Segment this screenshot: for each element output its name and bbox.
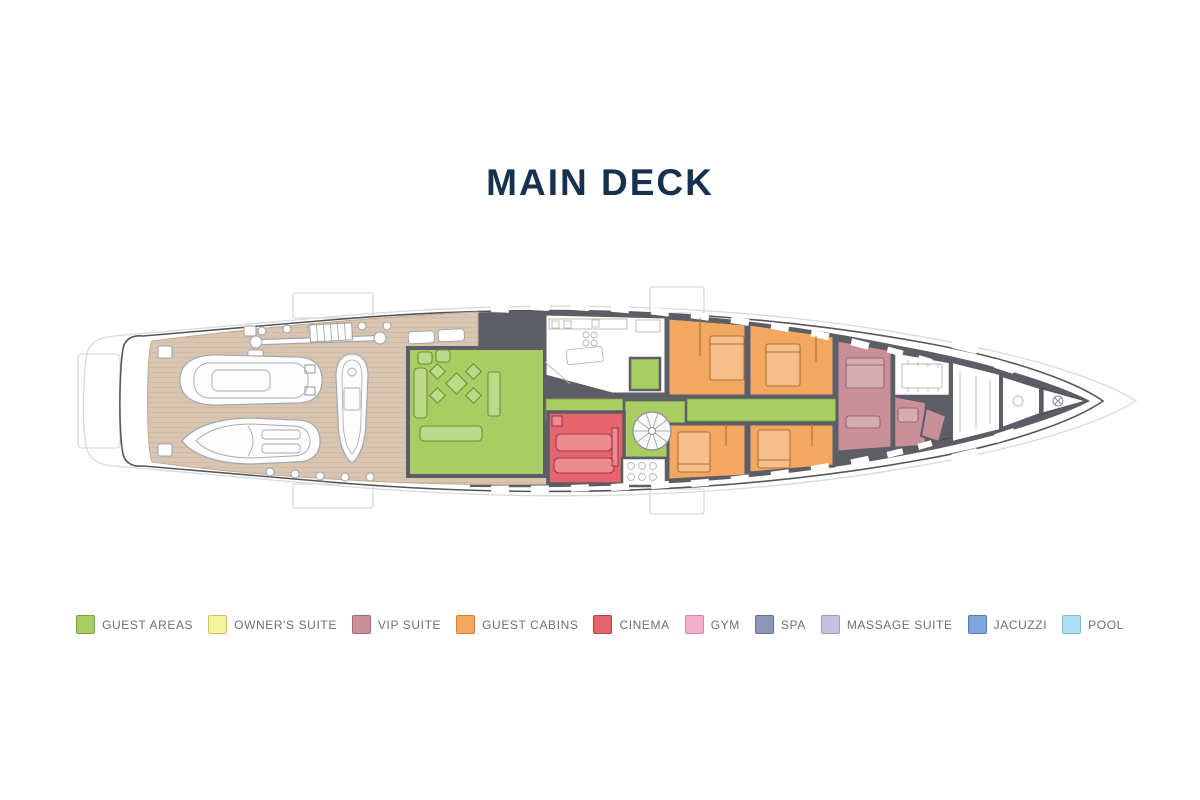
legend-swatch-cinema — [593, 615, 612, 634]
aft-stairway — [310, 323, 353, 342]
legend-label-guest-cabins: GUEST CABINS — [482, 618, 578, 632]
crew-mess-table — [902, 360, 942, 392]
legend-label-cinema: CINEMA — [619, 618, 669, 632]
legend-swatch-guest-areas — [76, 615, 95, 634]
main-deck-floorplan — [0, 0, 1200, 800]
spiral-staircase — [633, 412, 671, 450]
legend-label-spa: SPA — [781, 618, 806, 632]
legend: GUEST AREAS OWNER'S SUITE VIP SUITE GUES… — [0, 615, 1200, 634]
legend-item-gym: GYM — [685, 615, 740, 634]
legend-label-massage-suite: MASSAGE SUITE — [847, 618, 953, 632]
legend-label-vip-suite: VIP SUITE — [378, 618, 441, 632]
legend-item-guest-areas: GUEST AREAS — [76, 615, 193, 634]
legend-item-cinema: CINEMA — [593, 615, 669, 634]
legend-swatch-owners-suite — [208, 615, 227, 634]
legend-swatch-spa — [755, 615, 774, 634]
legend-label-gym: GYM — [711, 618, 740, 632]
legend-swatch-gym — [685, 615, 704, 634]
legend-swatch-vip-suite — [352, 615, 371, 634]
legend-item-vip-suite: VIP SUITE — [352, 615, 441, 634]
legend-item-guest-cabins: GUEST CABINS — [456, 615, 578, 634]
room-vip-suite — [837, 340, 892, 452]
legend-item-pool: POOL — [1062, 615, 1124, 634]
legend-item-massage-suite: MASSAGE SUITE — [821, 615, 953, 634]
legend-item-jacuzzi: JACUZZI — [968, 615, 1048, 634]
tender-large — [180, 355, 322, 405]
legend-swatch-jacuzzi — [968, 615, 987, 634]
legend-label-jacuzzi: JACUZZI — [994, 618, 1048, 632]
room-elevator-lobby — [630, 358, 660, 390]
legend-label-guest-areas: GUEST AREAS — [102, 618, 193, 632]
legend-swatch-massage-suite — [821, 615, 840, 634]
legend-item-owners-suite: OWNER'S SUITE — [208, 615, 337, 634]
legend-swatch-guest-cabins — [456, 615, 475, 634]
legend-label-owners-suite: OWNER'S SUITE — [234, 618, 337, 632]
legend-swatch-pool — [1062, 615, 1081, 634]
deck-plan-page: MAIN DECK — [0, 0, 1200, 800]
legend-item-spa: SPA — [755, 615, 806, 634]
legend-label-pool: POOL — [1088, 618, 1124, 632]
